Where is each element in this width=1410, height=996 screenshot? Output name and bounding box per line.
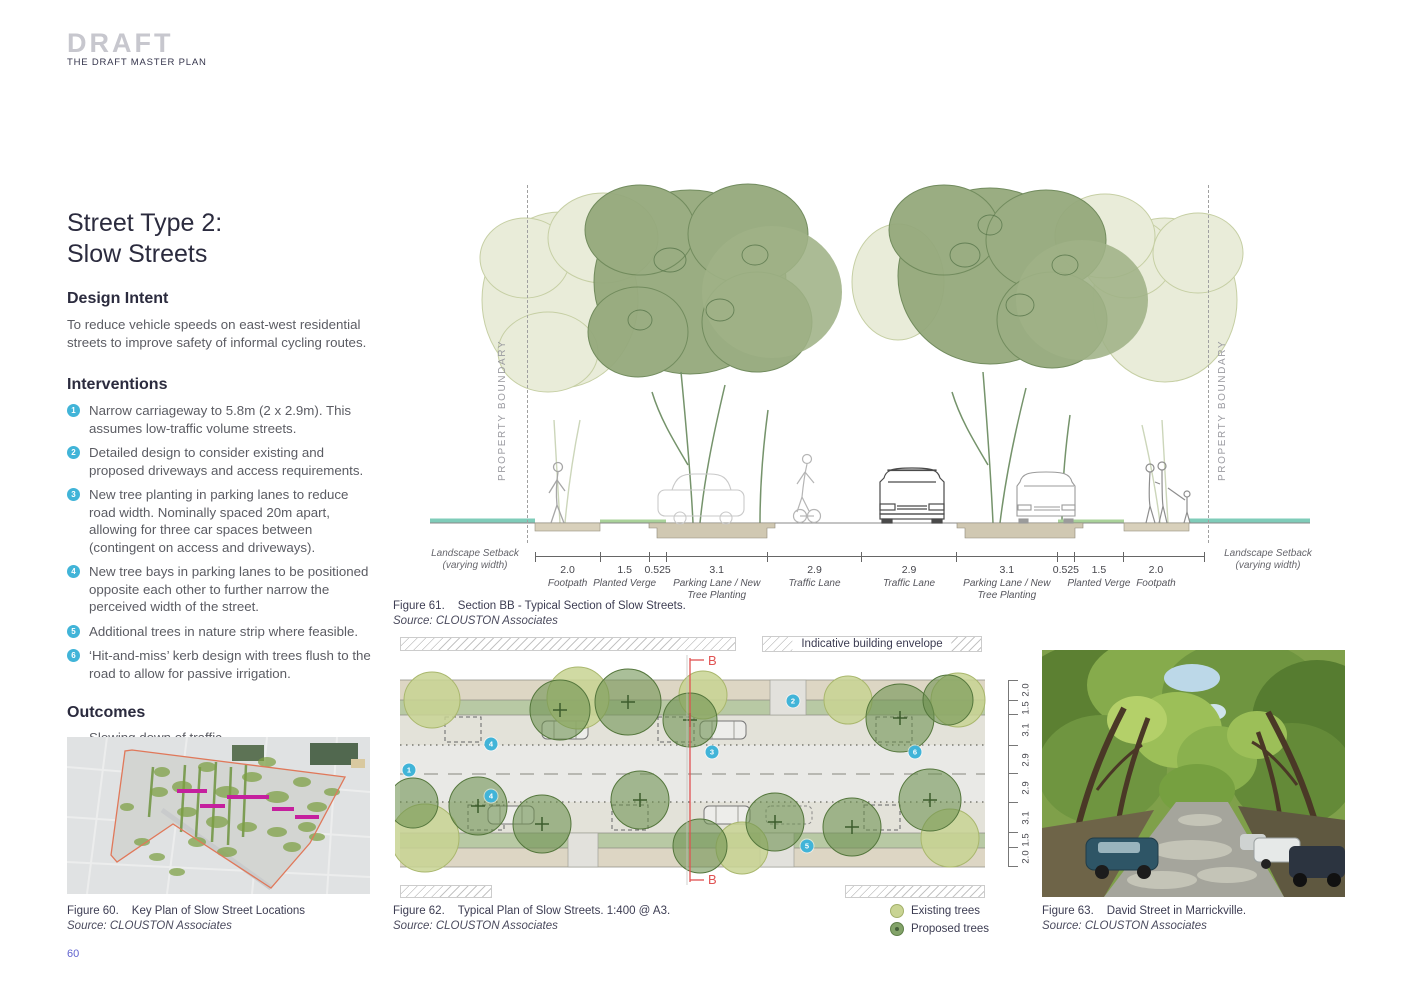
interventions-heading: Interventions — [67, 376, 377, 394]
ruler-value: 2.9 — [1021, 773, 1032, 803]
intervention-item: 2Detailed design to consider existing an… — [67, 444, 377, 479]
setback-label-right: Landscape Setback (varying width) — [1213, 548, 1323, 572]
dimension-label: Traffic Lane — [767, 578, 862, 590]
text-column: Street Type 2: Slow Streets Design Inten… — [67, 208, 377, 772]
page-number: 60 — [67, 948, 79, 960]
footpath-slab — [1124, 523, 1189, 531]
dimension-value: 1.5 — [617, 564, 632, 576]
figure-title: Typical Plan of Slow Streets. 1:400 @ A3… — [458, 905, 670, 917]
ruler-value: 2.0 — [1021, 842, 1032, 872]
intervention-text: ‘Hit-and-miss’ kerb design with trees fl… — [89, 648, 371, 681]
legend-tree-swatch — [890, 904, 904, 918]
ruler-segment: 1.5 — [1009, 700, 1018, 715]
section-marker-b-top: B — [708, 653, 717, 668]
legend-tree-swatch — [890, 922, 904, 936]
figure-source: Source: CLOUSTON Associates — [393, 920, 670, 932]
figure-61-caption: Figure 61.Section BB - Typical Section o… — [393, 600, 686, 627]
setback-line2: (varying width) — [420, 560, 530, 572]
building-envelope-hatch — [400, 637, 736, 651]
tree-trunks — [652, 372, 1070, 523]
intervention-item: 4New tree bays in parking lanes to be po… — [67, 563, 377, 616]
plan-dimension-ruler: 2.01.53.12.92.93.11.52.0 — [1008, 680, 1018, 867]
figure-label: Figure 63. — [1042, 905, 1094, 917]
intervention-item: 6‘Hit-and-miss’ kerb design with trees f… — [67, 647, 377, 682]
ruler-segment: 1.5 — [1009, 832, 1018, 847]
draft-watermark: DRAFT — [67, 30, 207, 56]
dimension-value: 1.5 — [1092, 564, 1107, 576]
intervention-text: Narrow carriageway to 5.8m (2 x 2.9m). T… — [89, 403, 351, 436]
ruler-segment: 3.1 — [1009, 802, 1018, 833]
dimension-value: 2.9 — [902, 564, 917, 576]
legend-label: Proposed trees — [911, 923, 989, 935]
section-marker-b-bottom: B — [708, 872, 717, 887]
dimension-value: 2.9 — [807, 564, 822, 576]
intervention-text: New tree bays in parking lanes to be pos… — [89, 564, 368, 614]
building-envelope-hatch: Indicative building envelope — [762, 636, 982, 652]
plan-marker-6: 6 — [909, 746, 922, 759]
dimension-value: 2.0 — [560, 564, 575, 576]
interventions-list: 1Narrow carriageway to 5.8m (2 x 2.9m). … — [67, 402, 377, 682]
dimension-label: Footpath — [1108, 578, 1203, 590]
figure-title: David Street in Marrickville. — [1107, 905, 1246, 917]
pedestrian-figure — [549, 463, 565, 524]
figure-62-caption: Figure 62.Typical Plan of Slow Streets. … — [393, 905, 670, 932]
property-boundary-line — [1208, 185, 1209, 543]
intervention-item: 5Additional trees in nature strip where … — [67, 623, 377, 641]
intervention-number-badge: 6 — [67, 649, 80, 662]
title-line-1: Street Type 2: — [67, 208, 377, 239]
ruler-segment: 2.9 — [1009, 745, 1018, 774]
property-boundary-line — [527, 185, 528, 543]
property-boundary-label: PROPERTY BOUNDARY — [1217, 340, 1228, 481]
ruler-segment: 3.1 — [1009, 714, 1018, 745]
dimension-label: Planted Verge — [577, 578, 672, 590]
kerb-buildout — [649, 523, 775, 538]
section-drawing — [430, 180, 1315, 545]
park-block — [232, 745, 264, 761]
header: DRAFT THE DRAFT MASTER PLAN — [67, 30, 207, 68]
figure-source: Source: CLOUSTON Associates — [393, 615, 686, 627]
plan-marker-4: 4 — [485, 790, 498, 803]
figure-source: Source: CLOUSTON Associates — [67, 920, 305, 932]
intervention-number-badge: 3 — [67, 488, 80, 501]
figure-title: Section BB - Typical Section of Slow Str… — [458, 600, 686, 612]
dimension-value: 3.1 — [709, 564, 724, 576]
dimension-value: 0.525 — [644, 564, 670, 576]
section-dimension-bar: 2.0Footpath1.5Planted Verge0.5253.1Parki… — [535, 556, 1205, 557]
setback-label-left: Landscape Setback (varying width) — [420, 548, 530, 572]
figure-60-caption: Figure 60.Key Plan of Slow Street Locati… — [67, 905, 305, 932]
dimension-label: Parking Lane / New Tree Planting — [959, 578, 1054, 601]
outcomes-heading: Outcomes — [67, 704, 377, 722]
figure-63-caption: Figure 63.David Street in Marrickville. … — [1042, 905, 1246, 932]
ruler-segment: 2.9 — [1009, 773, 1018, 802]
car-front-figure — [880, 468, 944, 523]
intervention-number-badge: 1 — [67, 404, 80, 417]
intervention-item: 1Narrow carriageway to 5.8m (2 x 2.9m). … — [67, 402, 377, 437]
car-front-figure — [1017, 472, 1075, 523]
document-page: DRAFT THE DRAFT MASTER PLAN Street Type … — [0, 0, 1410, 996]
intervention-number-badge: 2 — [67, 446, 80, 459]
setback-line2: (varying width) — [1213, 560, 1323, 572]
legend-item: Proposed trees — [890, 922, 989, 936]
dimension-label: Traffic Lane — [862, 578, 957, 590]
intervention-text: Additional trees in nature strip where f… — [89, 624, 358, 639]
intervention-number-badge: 5 — [67, 625, 80, 638]
figure-label: Figure 60. — [67, 905, 119, 917]
parked-car-figure — [658, 474, 744, 524]
plan-marker-5: 5 — [801, 840, 814, 853]
dimension-label: Parking Lane / New Tree Planting — [669, 578, 764, 601]
setback-line1: Landscape Setback — [1213, 548, 1323, 560]
property-boundary-label: PROPERTY BOUNDARY — [497, 340, 508, 481]
intervention-number-badge: 4 — [67, 565, 80, 578]
dimension-value: 2.0 — [1149, 564, 1164, 576]
kerb-buildout — [957, 523, 1083, 538]
dimension-value: 0.525 — [1053, 564, 1079, 576]
design-intent-heading: Design Intent — [67, 290, 377, 308]
title-line-2: Slow Streets — [67, 239, 377, 270]
cyclist-figure — [794, 455, 821, 523]
building-envelope-label: Indicative building envelope — [792, 637, 951, 651]
document-subtitle: THE DRAFT MASTER PLAN — [67, 57, 207, 68]
intervention-text: New tree planting in parking lanes to re… — [89, 487, 348, 555]
figure-title: Key Plan of Slow Street Locations — [132, 905, 305, 917]
plan-marker-1: 1 — [403, 764, 416, 777]
ruler-value: 2.9 — [1021, 745, 1032, 775]
ruler-segment: 2.0 — [1009, 847, 1018, 867]
plan-marker-3: 3 — [706, 746, 719, 759]
intervention-item: 3New tree planting in parking lanes to r… — [67, 486, 377, 556]
ruler-segment: 2.0 — [1009, 680, 1018, 700]
setback-line1: Landscape Setback — [420, 548, 530, 560]
street-photo — [1042, 650, 1345, 897]
dimension-value: 3.1 — [1000, 564, 1015, 576]
legend-label: Existing trees — [911, 905, 980, 917]
plan-drawing — [395, 655, 995, 890]
legend-item: Existing trees — [890, 904, 989, 918]
footpath-slab — [535, 523, 600, 531]
plan-marker-4: 4 — [485, 738, 498, 751]
ruler-value: 3.1 — [1021, 715, 1032, 745]
design-intent-body: To reduce vehicle speeds on east-west re… — [67, 316, 377, 352]
key-plan-map — [67, 737, 370, 894]
setback-green-strip — [430, 519, 535, 524]
park-block — [310, 743, 358, 765]
page-title: Street Type 2: Slow Streets — [67, 208, 377, 270]
figure-source: Source: CLOUSTON Associates — [1042, 920, 1246, 932]
figure-label: Figure 61. — [393, 600, 445, 612]
intervention-text: Detailed design to consider existing and… — [89, 445, 363, 478]
tree-legend: Existing treesProposed trees — [890, 904, 989, 940]
figure-label: Figure 62. — [393, 905, 445, 917]
plan-marker-2: 2 — [787, 695, 800, 708]
